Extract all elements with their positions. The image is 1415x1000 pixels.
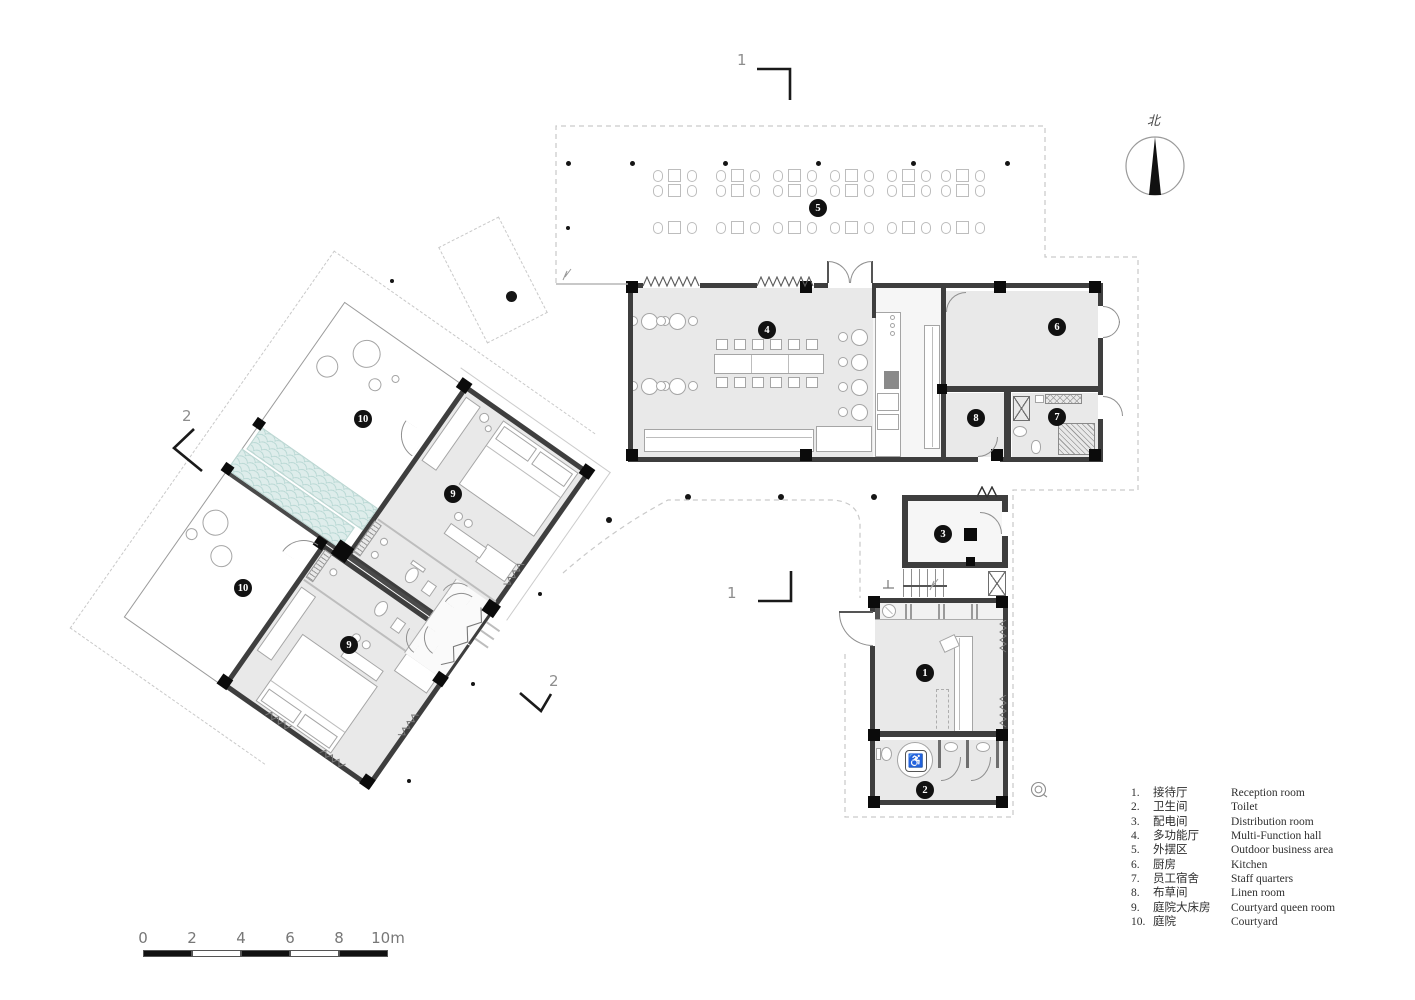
legend-en: Outdoor business area bbox=[1231, 843, 1367, 857]
rec-wall-top bbox=[870, 598, 1008, 603]
outdoor-table bbox=[845, 169, 858, 182]
entrance-door-arc bbox=[828, 261, 850, 283]
washbasin-icon bbox=[1013, 426, 1027, 437]
banquet-chair bbox=[734, 377, 746, 388]
stairs bbox=[903, 569, 949, 597]
dist-wall bbox=[902, 495, 908, 568]
outdoor-chair bbox=[921, 170, 931, 182]
legend-en: Reception room bbox=[1231, 786, 1367, 800]
column-dot bbox=[390, 279, 394, 283]
kitchen-floor bbox=[946, 291, 1098, 386]
kitchen-ext-door-arc bbox=[1103, 321, 1120, 338]
dist-wall bbox=[902, 562, 1008, 568]
column-dot bbox=[723, 161, 728, 166]
outdoor-chair bbox=[830, 170, 840, 182]
column bbox=[996, 729, 1008, 741]
column bbox=[991, 449, 1003, 461]
small-sink bbox=[1035, 395, 1044, 403]
outdoor-chair bbox=[941, 185, 951, 197]
legend-en: Kitchen bbox=[1231, 858, 1367, 872]
legend-num: 8. bbox=[1127, 886, 1153, 900]
column-dot bbox=[538, 592, 542, 596]
table-divider bbox=[751, 355, 752, 373]
outdoor-table bbox=[788, 169, 801, 182]
wc-icon bbox=[976, 742, 990, 752]
outdoor-chair bbox=[653, 185, 663, 197]
outdoor-chair bbox=[921, 185, 931, 197]
room-badge: 6 bbox=[1048, 318, 1066, 336]
legend-en: Distribution room bbox=[1231, 815, 1367, 829]
room-badge: 2 bbox=[916, 781, 934, 799]
legend-row: 7.员工宿舍Staff quarters bbox=[1127, 872, 1367, 886]
scale-segment bbox=[241, 950, 290, 957]
legend-row: 3.配电间Distribution room bbox=[1127, 815, 1367, 829]
linen-staff-wall bbox=[1004, 392, 1011, 458]
outdoor-table bbox=[902, 184, 915, 197]
section-mark-1-top: 1 bbox=[737, 51, 747, 69]
column bbox=[626, 281, 638, 293]
hall-wall-bottom bbox=[628, 457, 1103, 462]
column-dot bbox=[778, 494, 784, 500]
outdoor-chair bbox=[807, 170, 817, 182]
banquet-chair bbox=[806, 377, 818, 388]
legend-num: 3. bbox=[1127, 815, 1153, 829]
legend-num: 9. bbox=[1127, 901, 1153, 915]
legend: 1.接待厅Reception room2.卫生间Toilet3.配电间Distr… bbox=[1127, 786, 1367, 929]
scale-bar: 0246810m bbox=[143, 929, 403, 961]
legend-num: 1. bbox=[1127, 786, 1153, 800]
chair bbox=[838, 382, 848, 392]
bar-counter-2 bbox=[816, 426, 872, 452]
outdoor-chair bbox=[830, 185, 840, 197]
legend-zh: 员工宿舍 bbox=[1153, 872, 1231, 886]
outdoor-table bbox=[902, 169, 915, 182]
rec-toilet-wall bbox=[870, 731, 1008, 737]
rec-wall-right bbox=[1003, 598, 1008, 805]
chair bbox=[656, 316, 666, 326]
legend-row: 10.庭院Courtyard bbox=[1127, 915, 1367, 929]
legend-zh: 庭院大床房 bbox=[1153, 901, 1231, 915]
wall-stub bbox=[872, 288, 876, 318]
scale-segment bbox=[339, 950, 388, 957]
banquet-chair bbox=[716, 377, 728, 388]
scale-label: 4 bbox=[236, 929, 246, 947]
mullion bbox=[905, 604, 907, 619]
outdoor-chair bbox=[887, 222, 897, 234]
equipment-block bbox=[964, 528, 977, 541]
banquet-chair bbox=[806, 339, 818, 350]
stall-divider bbox=[966, 740, 969, 768]
room-badge: 5 bbox=[809, 199, 827, 217]
round-table bbox=[669, 378, 686, 395]
dist-wall bbox=[902, 495, 1008, 501]
legend-row: 8.布草间Linen room bbox=[1127, 886, 1367, 900]
banquet-chair bbox=[770, 377, 782, 388]
legend-row: 1.接待厅Reception room bbox=[1127, 786, 1367, 800]
section-mark-2-left: 2 bbox=[182, 407, 192, 425]
outdoor-chair bbox=[975, 222, 985, 234]
hall-wall-left bbox=[628, 283, 633, 462]
burner-icon bbox=[890, 331, 895, 336]
column-dot bbox=[407, 779, 411, 783]
outdoor-table bbox=[788, 221, 801, 234]
outdoor-chair bbox=[773, 222, 783, 234]
column-dot bbox=[911, 161, 916, 166]
outdoor-chair bbox=[773, 185, 783, 197]
rec-door-arc bbox=[839, 613, 873, 646]
column bbox=[1089, 281, 1101, 293]
outdoor-chair bbox=[864, 222, 874, 234]
scale-label: 0 bbox=[138, 929, 148, 947]
outdoor-chair bbox=[941, 222, 951, 234]
outdoor-chair bbox=[687, 185, 697, 197]
legend-zh: 卫生间 bbox=[1153, 800, 1231, 814]
entry-step bbox=[480, 629, 494, 639]
legend-num: 5. bbox=[1127, 843, 1153, 857]
banquet-chair bbox=[752, 339, 764, 350]
scale-label: 8 bbox=[334, 929, 344, 947]
banquet-chair bbox=[752, 377, 764, 388]
outdoor-table bbox=[956, 221, 969, 234]
column bbox=[626, 449, 638, 461]
outdoor-table bbox=[668, 169, 681, 182]
toilet-icon bbox=[1031, 440, 1041, 454]
legend-en: Toilet bbox=[1231, 800, 1367, 814]
desk-line bbox=[959, 638, 960, 730]
legend-row: 6.厨房Kitchen bbox=[1127, 858, 1367, 872]
burner-icon bbox=[890, 323, 895, 328]
pergola-dashed-outline bbox=[438, 216, 548, 343]
outdoor-chair bbox=[921, 222, 931, 234]
legend-num: 6. bbox=[1127, 858, 1153, 872]
reception-desk bbox=[954, 636, 973, 732]
column bbox=[800, 449, 812, 461]
column bbox=[994, 281, 1006, 293]
legend-zh: 庭院 bbox=[1153, 915, 1231, 929]
scale-label: 10m bbox=[371, 929, 405, 947]
column-dot bbox=[606, 517, 612, 523]
wheelchair-icon: ♿ bbox=[905, 750, 927, 772]
stove-icon bbox=[884, 371, 899, 389]
legend-zh: 厨房 bbox=[1153, 858, 1231, 872]
legend-row: 9.庭院大床房Courtyard queen room bbox=[1127, 901, 1367, 915]
outdoor-chair bbox=[750, 185, 760, 197]
outdoor-table bbox=[845, 184, 858, 197]
kitchen-cabinet bbox=[877, 414, 899, 430]
island-line bbox=[932, 327, 933, 447]
legend-num: 2. bbox=[1127, 800, 1153, 814]
room-badge: 8 bbox=[967, 409, 985, 427]
window-opening bbox=[643, 283, 700, 288]
spiral-icon bbox=[1030, 781, 1048, 799]
outdoor-chair bbox=[653, 170, 663, 182]
entry-step bbox=[475, 638, 489, 648]
scale-label: 2 bbox=[187, 929, 197, 947]
chair bbox=[838, 357, 848, 367]
entrance-door-arc bbox=[850, 261, 872, 283]
section-mark-2-bottom: 2 bbox=[549, 672, 559, 690]
column-dot bbox=[871, 494, 877, 500]
stall-divider bbox=[996, 740, 999, 768]
column bbox=[996, 796, 1008, 808]
legend-zh: 外摆区 bbox=[1153, 843, 1231, 857]
kitchen-wall-south bbox=[941, 386, 1103, 392]
mullion bbox=[938, 604, 940, 619]
outdoor-table bbox=[788, 184, 801, 197]
outdoor-chair bbox=[807, 185, 817, 197]
outdoor-chair bbox=[687, 170, 697, 182]
room-badge: 10 bbox=[234, 579, 252, 597]
table-divider bbox=[788, 355, 789, 373]
round-table bbox=[851, 329, 868, 346]
outdoor-table bbox=[731, 169, 744, 182]
outdoor-chair bbox=[864, 170, 874, 182]
column-dot bbox=[566, 226, 570, 230]
mullion bbox=[943, 604, 945, 619]
outdoor-chair bbox=[716, 170, 726, 182]
outdoor-chair bbox=[750, 170, 760, 182]
scale-unit: m bbox=[390, 929, 405, 947]
guestroom-building bbox=[124, 302, 591, 789]
legend-zh: 接待厅 bbox=[1153, 786, 1231, 800]
column bbox=[1089, 449, 1101, 461]
scale-label: 6 bbox=[285, 929, 295, 947]
outdoor-chair bbox=[716, 222, 726, 234]
dashed-cabinet bbox=[936, 689, 949, 734]
outdoor-chair bbox=[864, 185, 874, 197]
banquet-chair bbox=[770, 339, 782, 350]
staff-ext-door-arc bbox=[1103, 396, 1123, 416]
column-dot bbox=[471, 682, 475, 686]
legend-en: Courtyard bbox=[1231, 915, 1367, 929]
column bbox=[800, 281, 812, 293]
round-table bbox=[669, 313, 686, 330]
legend-row: 2.卫生间Toilet bbox=[1127, 800, 1367, 814]
column-dot bbox=[685, 494, 691, 500]
legend-row: 4.多功能厅Multi-Function hall bbox=[1127, 829, 1367, 843]
outdoor-chair bbox=[687, 222, 697, 234]
chair bbox=[656, 381, 666, 391]
chair bbox=[838, 407, 848, 417]
wc-icon bbox=[944, 742, 958, 752]
outdoor-table bbox=[902, 221, 915, 234]
chair bbox=[688, 381, 698, 391]
bar-counter-line bbox=[646, 437, 812, 438]
room-badge: 4 bbox=[758, 321, 776, 339]
outdoor-chair bbox=[941, 170, 951, 182]
room-badge: 3 bbox=[934, 525, 952, 543]
stair-up-mark bbox=[882, 577, 896, 591]
outdoor-chair bbox=[807, 222, 817, 234]
column bbox=[868, 729, 880, 741]
room-badge: 10 bbox=[354, 410, 372, 428]
legend-zh: 配电间 bbox=[1153, 815, 1231, 829]
mullion bbox=[976, 604, 978, 619]
column-dot bbox=[566, 161, 571, 166]
scale-segment bbox=[290, 950, 339, 957]
kitchen-sink bbox=[877, 393, 899, 411]
mullion bbox=[910, 604, 912, 619]
outdoor-chair bbox=[716, 185, 726, 197]
rec-wall-bottom bbox=[870, 800, 1008, 805]
kitchen-wall bbox=[941, 288, 946, 462]
bar-counter bbox=[644, 429, 814, 452]
room-badge: 9 bbox=[444, 485, 462, 503]
outdoor-table bbox=[731, 221, 744, 234]
outdoor-chair bbox=[653, 222, 663, 234]
outdoor-table bbox=[956, 184, 969, 197]
outdoor-table bbox=[845, 221, 858, 234]
legend-zh: 多功能厅 bbox=[1153, 829, 1231, 843]
legend-num: 10. bbox=[1127, 915, 1153, 929]
north-label: 北 bbox=[1147, 110, 1160, 129]
banquet-table bbox=[714, 354, 824, 374]
floor-plan-canvas: 北 1 1 2 2 bbox=[0, 0, 1415, 1000]
column-dot bbox=[1005, 161, 1010, 166]
outdoor-table bbox=[956, 169, 969, 182]
chair bbox=[838, 332, 848, 342]
legend-num: 4. bbox=[1127, 829, 1153, 843]
outdoor-chair bbox=[750, 222, 760, 234]
round-table bbox=[851, 404, 868, 421]
outdoor-table bbox=[668, 184, 681, 197]
scale-segment bbox=[192, 950, 241, 957]
room-badge: 1 bbox=[916, 664, 934, 682]
round-table bbox=[851, 379, 868, 396]
shaft-icon bbox=[988, 571, 1006, 596]
banquet-chair bbox=[716, 339, 728, 350]
toilet-icon bbox=[881, 747, 892, 761]
banquet-chair bbox=[788, 339, 800, 350]
outdoor-table bbox=[731, 184, 744, 197]
counter-hatch bbox=[1045, 394, 1082, 404]
shower-icon bbox=[1013, 396, 1030, 421]
column bbox=[868, 796, 880, 808]
room-badge: 9 bbox=[340, 636, 358, 654]
legend-zh: 布草间 bbox=[1153, 886, 1231, 900]
outdoor-chair bbox=[830, 222, 840, 234]
column bbox=[937, 384, 947, 394]
legend-row: 5.外摆区Outdoor business area bbox=[1127, 843, 1367, 857]
column bbox=[996, 596, 1008, 608]
column-dot bbox=[506, 291, 517, 302]
stair-direction-line bbox=[903, 585, 947, 587]
outdoor-chair bbox=[975, 170, 985, 182]
banquet-chair bbox=[788, 377, 800, 388]
legend-en: Staff quarters bbox=[1231, 872, 1367, 886]
equipment-block bbox=[966, 557, 975, 566]
chair bbox=[688, 316, 698, 326]
legend-en: Multi-Function hall bbox=[1231, 829, 1367, 843]
column bbox=[868, 596, 880, 608]
scale-segment bbox=[143, 950, 192, 957]
burner-icon bbox=[890, 315, 895, 320]
outdoor-chair bbox=[887, 170, 897, 182]
outdoor-table bbox=[668, 221, 681, 234]
legend-num: 7. bbox=[1127, 872, 1153, 886]
mullion bbox=[971, 604, 973, 619]
column-dot bbox=[816, 161, 821, 166]
outdoor-chair bbox=[975, 185, 985, 197]
legend-en: Courtyard queen room bbox=[1231, 901, 1367, 915]
column-dot bbox=[630, 161, 635, 166]
entry-step bbox=[486, 621, 500, 631]
round-table bbox=[851, 354, 868, 371]
dist-door-opening bbox=[1002, 512, 1008, 536]
entrance-opening bbox=[828, 283, 872, 288]
room-badge: 7 bbox=[1048, 408, 1066, 426]
section-mark-1-bottom: 1 bbox=[727, 584, 737, 602]
legend-en: Linen room bbox=[1231, 886, 1367, 900]
outdoor-chair bbox=[773, 170, 783, 182]
banquet-chair bbox=[734, 339, 746, 350]
outdoor-chair bbox=[887, 185, 897, 197]
